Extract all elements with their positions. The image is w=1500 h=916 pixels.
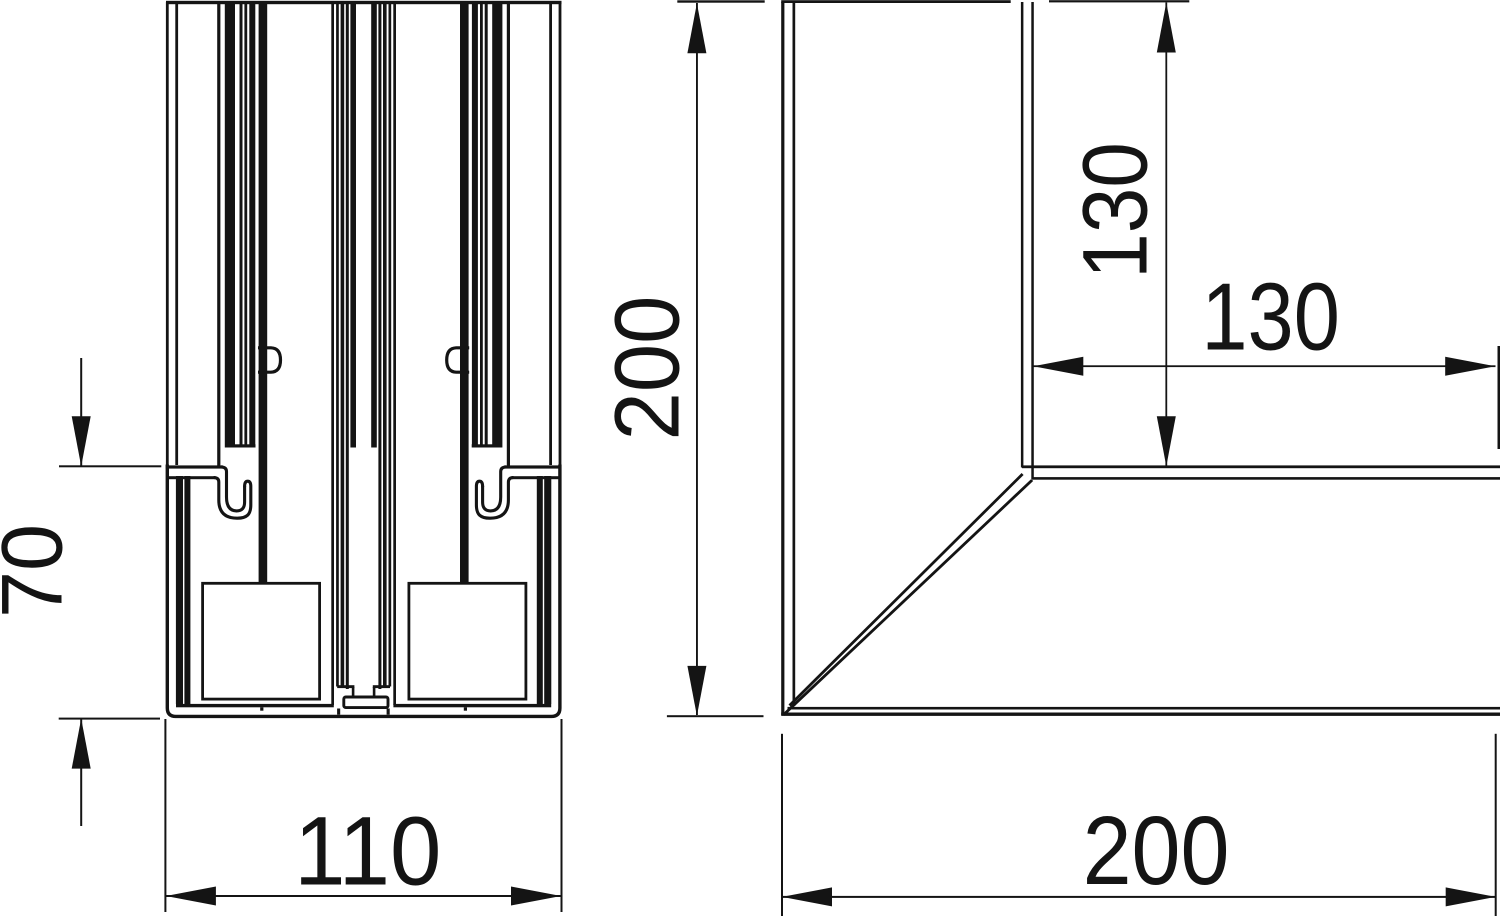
svg-text:200: 200 [1083, 796, 1230, 905]
svg-text:70: 70 [0, 524, 80, 618]
svg-text:130: 130 [1201, 263, 1340, 370]
svg-text:200: 200 [595, 296, 699, 441]
svg-text:130: 130 [1063, 142, 1167, 279]
svg-text:110: 110 [294, 797, 441, 906]
